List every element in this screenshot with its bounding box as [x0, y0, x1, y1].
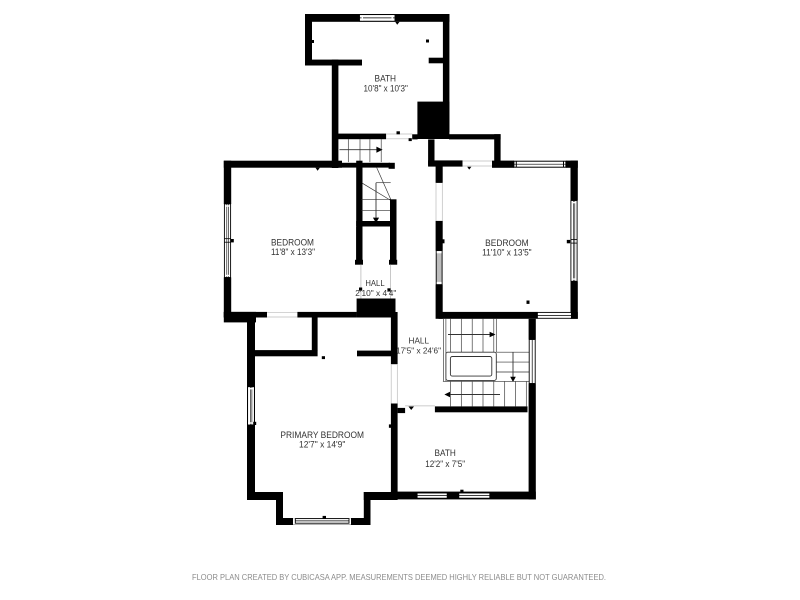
svg-text:BEDROOM: BEDROOM [485, 238, 529, 248]
svg-text:BEDROOM: BEDROOM [271, 237, 314, 247]
svg-text:12'7" x 14'9": 12'7" x 14'9" [299, 440, 345, 450]
svg-text:2'10" x 4'4": 2'10" x 4'4" [355, 288, 396, 298]
svg-text:11'8" x 13'3": 11'8" x 13'3" [271, 247, 315, 257]
svg-text:HALL: HALL [409, 337, 430, 346]
svg-text:11'10" x 13'5": 11'10" x 13'5" [482, 248, 532, 258]
svg-text:10'8" x 10'3": 10'8" x 10'3" [364, 84, 408, 94]
svg-text:12'2" x 7'5": 12'2" x 7'5" [425, 459, 465, 469]
svg-text:BATH: BATH [375, 73, 397, 83]
svg-text:FLOOR PLAN CREATED BY CUBICASA: FLOOR PLAN CREATED BY CUBICASA APP. MEAS… [192, 572, 606, 582]
svg-text:PRIMARY BEDROOM: PRIMARY BEDROOM [280, 430, 364, 440]
svg-text:BATH: BATH [435, 448, 456, 458]
svg-text:HALL: HALL [365, 279, 385, 288]
svg-text:17'5" x 24'6": 17'5" x 24'6" [396, 346, 441, 356]
